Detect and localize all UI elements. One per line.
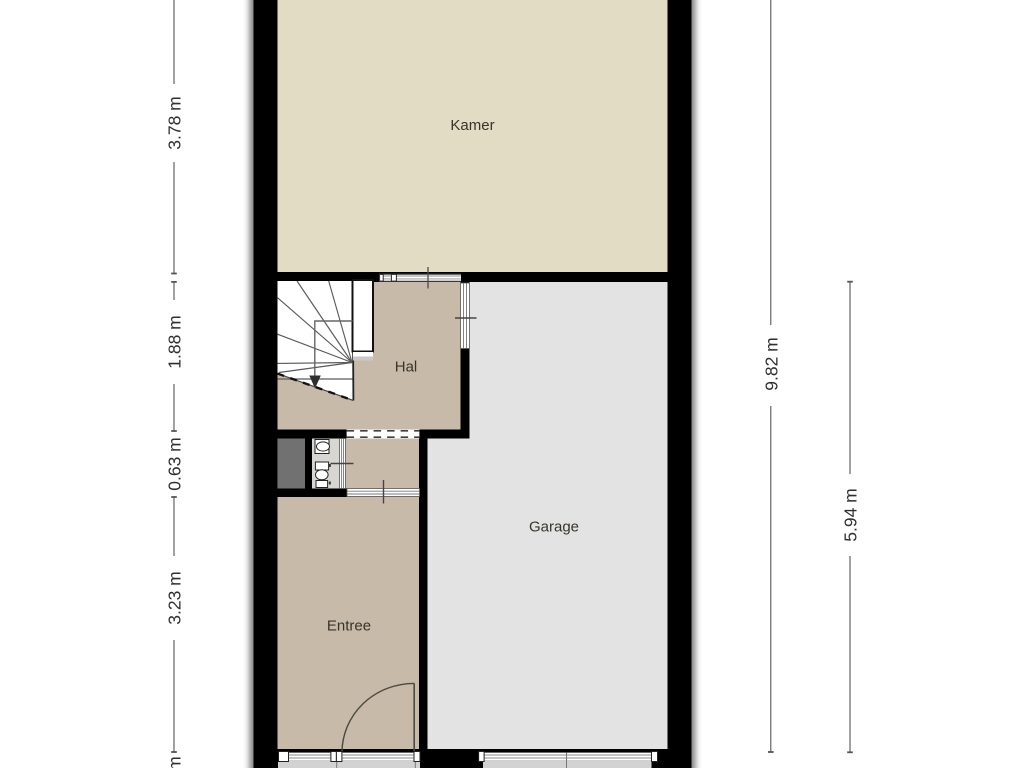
svg-text:1.88 m: 1.88 m (165, 315, 185, 369)
svg-text:3.78 m: 3.78 m (165, 96, 185, 150)
svg-text:9.82 m: 9.82 m (761, 337, 781, 391)
svg-text:0.63 m: 0.63 m (165, 437, 185, 491)
svg-text:Garage: Garage (529, 519, 579, 536)
svg-text:Entree: Entree (327, 618, 371, 635)
svg-text:3.23 m: 3.23 m (165, 756, 185, 768)
svg-text:Kamer: Kamer (450, 117, 494, 134)
svg-text:5.94 m: 5.94 m (841, 488, 861, 542)
svg-text:3.23 m: 3.23 m (165, 571, 185, 625)
svg-text:Hal: Hal (395, 359, 418, 376)
